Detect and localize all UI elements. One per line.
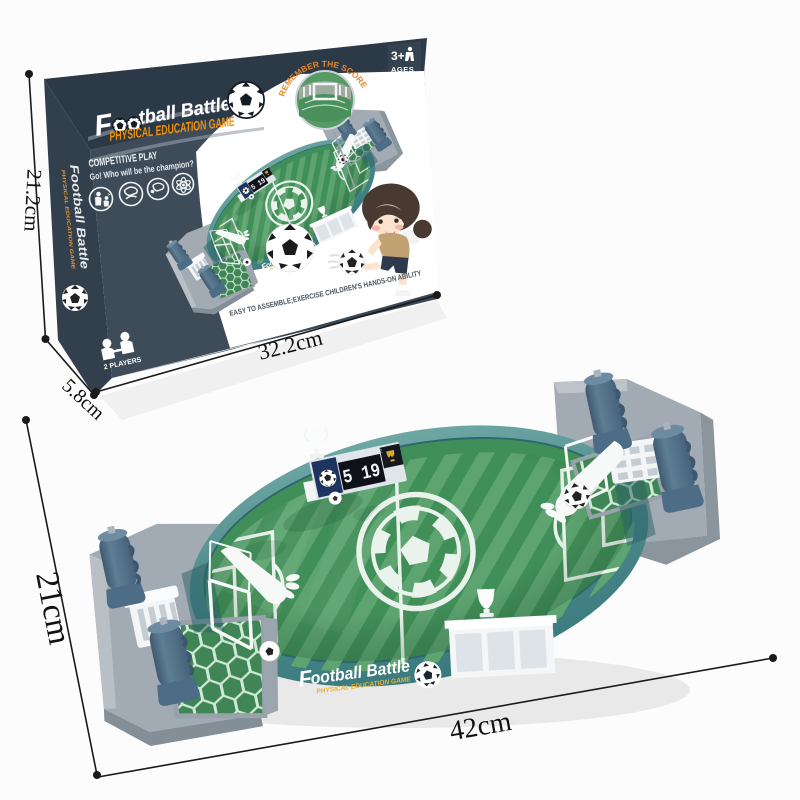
- svg-text:21.2cm: 21.2cm: [19, 169, 46, 233]
- svg-text:3+: 3+: [391, 49, 405, 63]
